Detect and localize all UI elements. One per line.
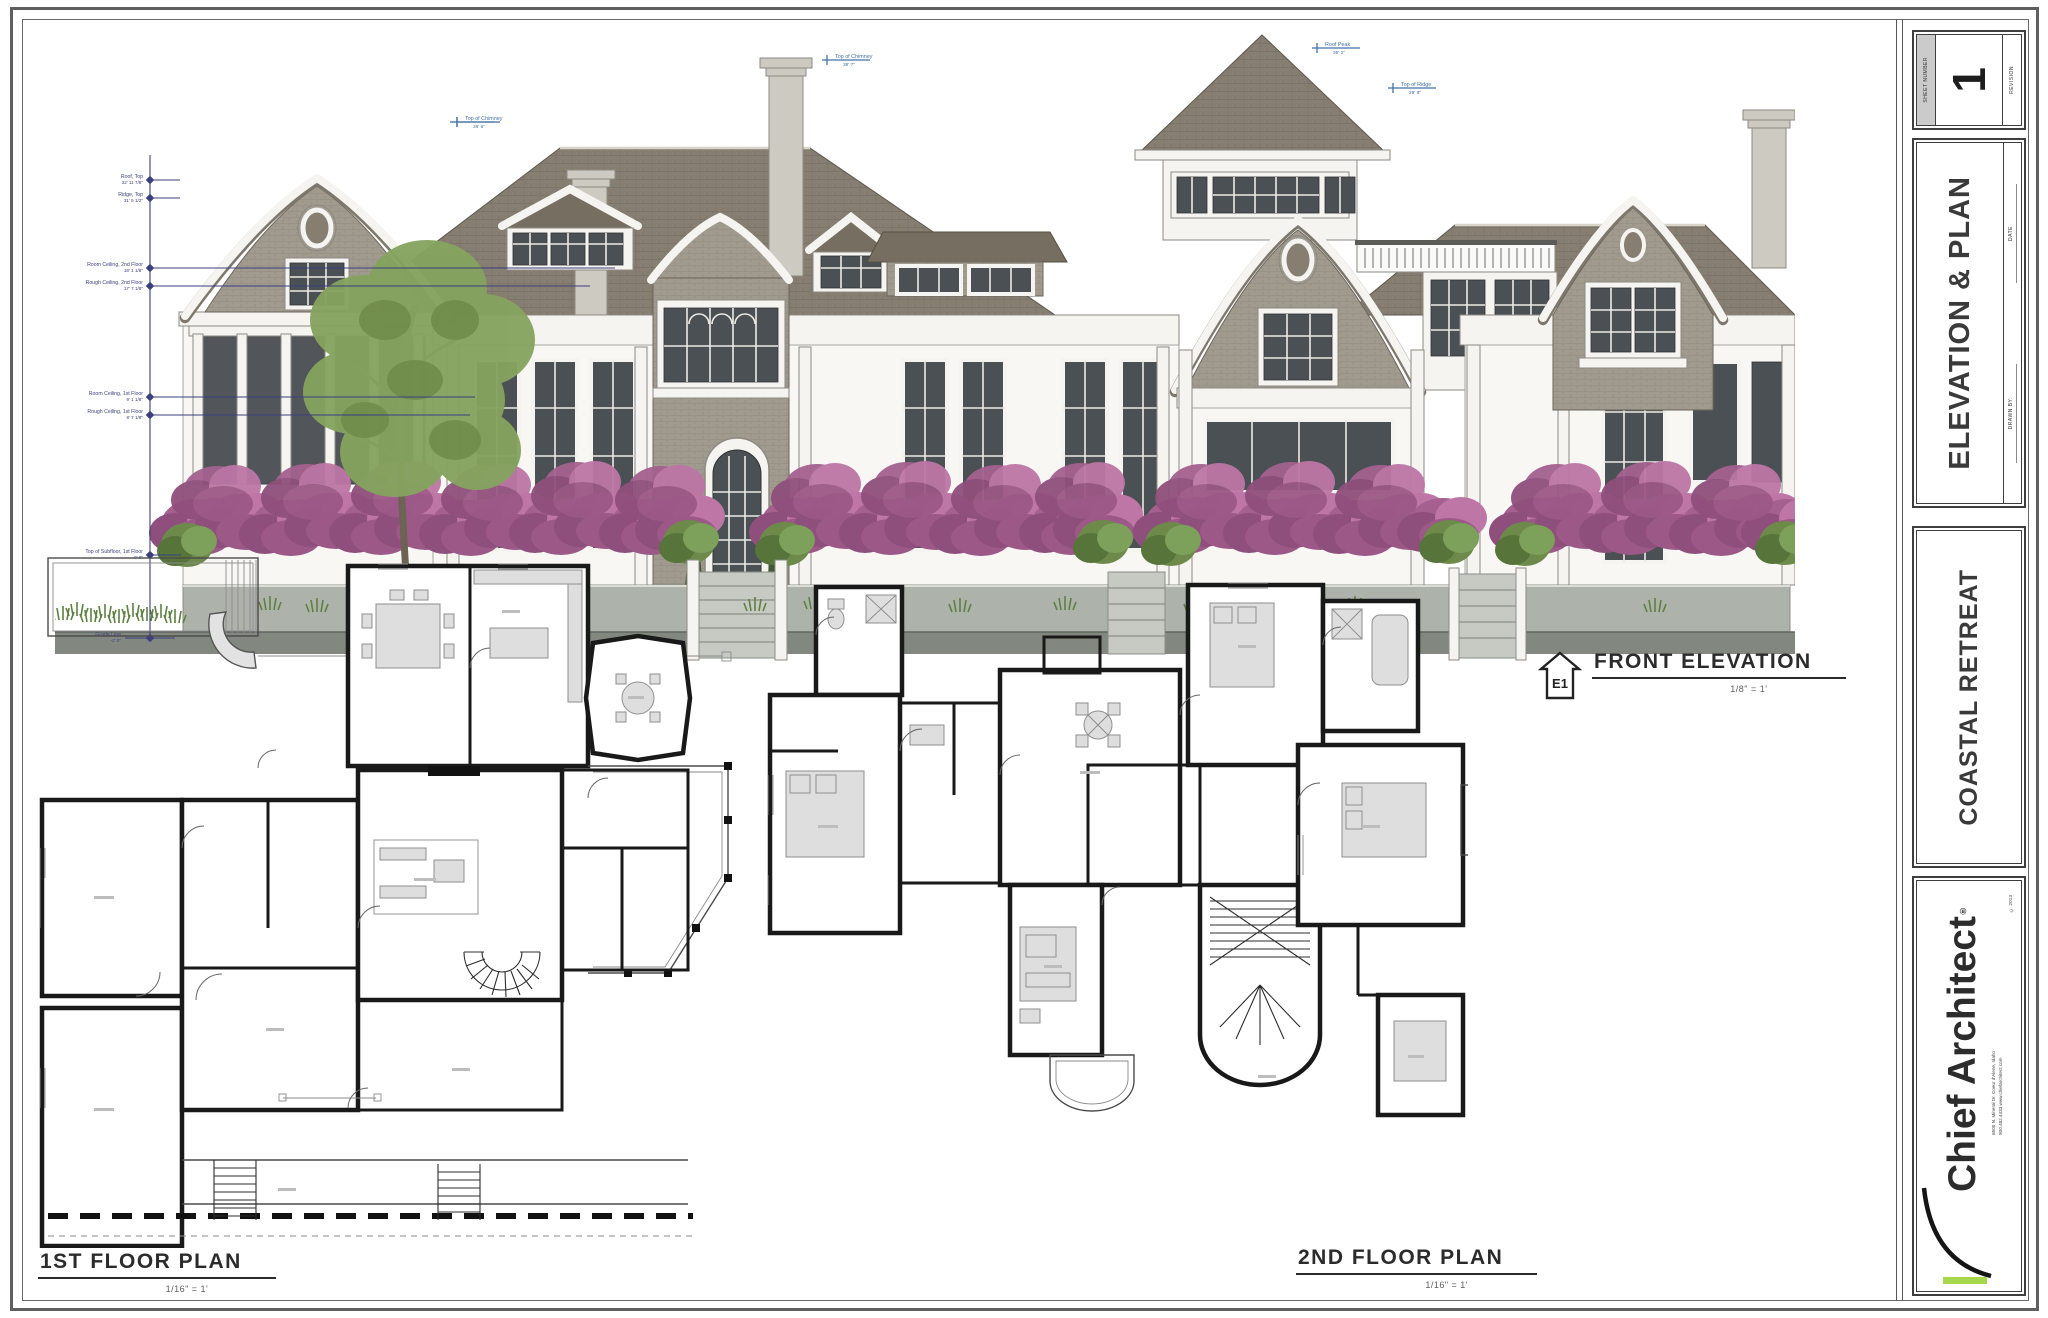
first-floor-label-group: 1ST FLOOR PLAN 1/16" = 1' <box>38 1250 276 1294</box>
cupola-tower <box>1135 35 1390 240</box>
brand-logo-swoosh-icon <box>1921 1184 1997 1288</box>
title-block-separator <box>1896 19 1903 1301</box>
brand-address-line2: 800.482.4433 www.chiefarchitect.com <box>1998 1051 2003 1135</box>
second-floor-title: 2ND FLOOR PLAN <box>1296 1246 1537 1275</box>
elevation-tag: E1 <box>1552 676 1568 691</box>
dim-value: 8' 7 1/8" <box>126 415 143 420</box>
first-floor-plan-drawing <box>28 548 738 1248</box>
roof-deck-railing <box>1355 240 1557 272</box>
drawn-by-label: DRAWN BY: <box>2008 397 2014 429</box>
second-floor-plan-drawing <box>758 575 1468 1235</box>
dim-value: 31' 5 1/2" <box>124 198 143 203</box>
brand-box: Chief Architect® 6500 N. Mineral Dr. Coe… <box>1912 876 2026 1296</box>
brand-trademark: ® <box>1958 906 1968 916</box>
first-floor-scale: 1/16" = 1' <box>166 1284 209 1294</box>
revision-strip: REVISION <box>2002 35 2021 125</box>
front-elevation-title: FRONT ELEVATION <box>1592 650 1846 679</box>
dim-value: 9' 1 1/8" <box>126 397 143 402</box>
callout-label: Roof Peak <box>1325 42 1350 48</box>
sheet-number: 1 <box>1942 67 1996 93</box>
brand-copyright: © 2013 <box>2009 895 2014 912</box>
sheet-number-caption-strip: SHEET NUMBER <box>1917 35 1936 125</box>
project-title: COASTAL RETREAT <box>1955 569 1984 826</box>
dim-value: 32' 11 7/8" <box>122 180 144 185</box>
sheet-title: ELEVATION & PLAN <box>1944 176 1977 470</box>
first-floor-title: 1ST FLOOR PLAN <box>38 1250 276 1279</box>
brand-address-line1: 6500 N. Mineral Dr. Coeur d'Alene, Idaho <box>1991 1051 1996 1135</box>
dim-value: 18' 1 1/8" <box>124 268 143 273</box>
brand-name-text: Chief Architect® <box>1941 891 1985 1207</box>
callout-label: Top of Ridge <box>1401 82 1431 88</box>
elevation-tag-icon: E1 <box>1538 650 1582 702</box>
front-elevation-label-group: E1 FRONT ELEVATION 1/8" = 1' <box>1538 650 1846 702</box>
project-title-box: COASTAL RETREAT <box>1912 526 2026 868</box>
front-elevation-scale: 1/8" = 1' <box>1730 684 1767 694</box>
revision-caption: REVISION <box>2009 66 2015 94</box>
callout-label: Top of Chimney <box>835 54 873 60</box>
callout-value: 29' 8" <box>1409 90 1421 96</box>
brand-address: 6500 N. Mineral Dr. Coeur d'Alene, Idaho… <box>1991 1051 2003 1135</box>
drawing-sheet: Roof, Top 32' 11 7/8" Ridge, Top 31' 5 1… <box>0 0 2048 1318</box>
sheet-title-box: ELEVATION & PLAN DATE DRAWN BY: <box>1912 138 2026 508</box>
drawn-by-field: DRAWN BY: <box>2004 323 2021 503</box>
sheet-number-caption: SHEET NUMBER <box>1923 57 1929 103</box>
chimney-right <box>1743 110 1795 268</box>
callout-label: Top of Chimney <box>465 116 503 122</box>
callout-value: 35' 2" <box>1333 50 1345 56</box>
brand-name: Chief Architect <box>1941 916 1985 1192</box>
callout-value: 28' 6" <box>473 124 485 130</box>
dim-value: 17' 7 1/8" <box>124 286 143 291</box>
callout-value: 38' 7" <box>843 62 855 68</box>
shed-dormer <box>867 232 1067 296</box>
second-floor-scale: 1/16" = 1' <box>1425 1280 1468 1290</box>
sheet-number-box: SHEET NUMBER 1 REVISION <box>1912 30 2026 130</box>
second-floor-label-group: 2ND FLOOR PLAN 1/16" = 1' <box>1296 1246 1537 1290</box>
date-label: DATE <box>2008 226 2014 241</box>
date-field: DATE <box>2004 143 2021 323</box>
